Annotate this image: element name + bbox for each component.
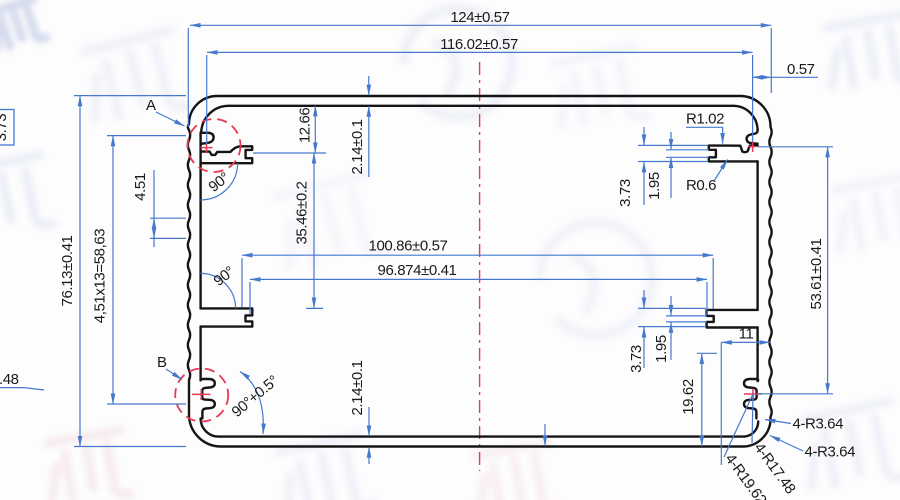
svg-text:76.13±0.41: 76.13±0.41 (59, 235, 76, 306)
svg-text:R1.02: R1.02 (686, 111, 724, 128)
svg-text:1.95: 1.95 (646, 172, 663, 200)
svg-text:3.73: 3.73 (617, 179, 634, 207)
svg-text:4,51x13=58,63: 4,51x13=58,63 (92, 229, 109, 324)
svg-text:35.46±0.2: 35.46±0.2 (294, 181, 311, 244)
svg-text:116.02±0.57: 116.02±0.57 (440, 36, 518, 53)
svg-text:96.874±0.41: 96.874±0.41 (378, 262, 457, 279)
svg-text:12.66: 12.66 (297, 108, 314, 144)
svg-text:R0.6: R0.6 (686, 177, 716, 194)
svg-text:4-R3.64: 4-R3.64 (805, 444, 856, 461)
svg-text:1.95: 1.95 (653, 335, 670, 363)
svg-text:100.86±0.57: 100.86±0.57 (369, 238, 448, 255)
svg-text:90°: 90° (206, 169, 234, 196)
svg-text:B: B (157, 354, 167, 371)
svg-text:2.14±0.1: 2.14±0.1 (349, 360, 366, 415)
svg-text:2.14±0.1: 2.14±0.1 (349, 119, 366, 174)
svg-text:19.62: 19.62 (680, 379, 697, 415)
svg-text:11: 11 (739, 326, 754, 343)
svg-text:3.73: 3.73 (0, 114, 10, 142)
svg-text:53.61±0.41: 53.61±0.41 (808, 238, 825, 309)
svg-text:1.48: 1.48 (0, 371, 19, 388)
svg-text:0.57: 0.57 (787, 61, 815, 78)
svg-text:90°: 90° (211, 263, 239, 290)
svg-text:90°+0.5°: 90°+0.5° (229, 372, 282, 421)
svg-text:A: A (146, 97, 156, 114)
svg-text:4-R3.64: 4-R3.64 (793, 416, 844, 433)
svg-text:3.73: 3.73 (628, 345, 645, 373)
svg-text:124±0.57: 124±0.57 (450, 9, 509, 26)
svg-text:4.51: 4.51 (132, 173, 149, 201)
